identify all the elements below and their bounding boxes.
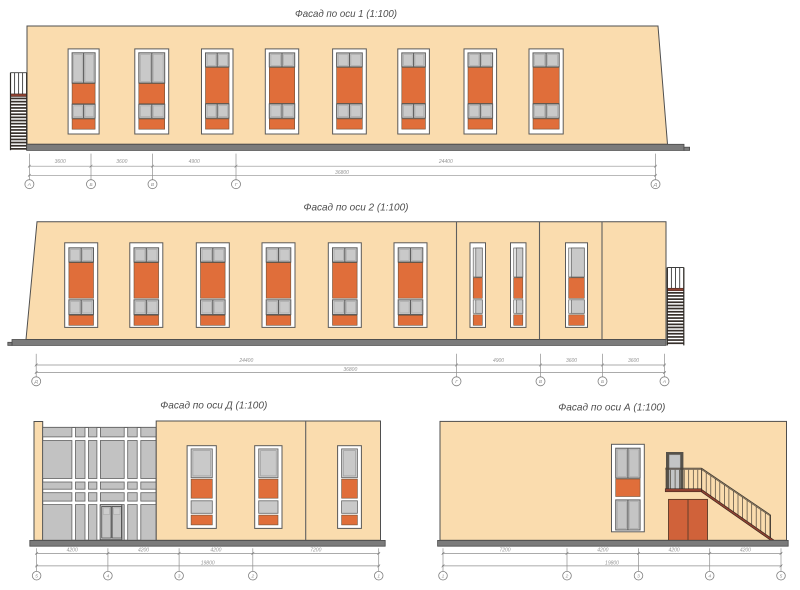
- svg-text:4: 4: [107, 574, 110, 580]
- svg-text:5: 5: [780, 574, 783, 580]
- svg-text:3600: 3600: [55, 159, 66, 165]
- svg-text:19800: 19800: [605, 561, 619, 567]
- svg-text:4200: 4200: [67, 547, 78, 553]
- svg-text:4200: 4200: [669, 547, 680, 553]
- svg-text:7200: 7200: [499, 547, 510, 553]
- svg-text:Д: Д: [653, 182, 658, 188]
- svg-text:2: 2: [250, 574, 254, 580]
- svg-text:4200: 4200: [597, 547, 608, 553]
- svg-text:4: 4: [708, 574, 711, 580]
- svg-text:36800: 36800: [343, 367, 357, 373]
- svg-text:Г: Г: [235, 182, 238, 188]
- svg-text:Фасад по оси А (1:100): Фасад по оси А (1:100): [558, 403, 665, 414]
- svg-text:4200: 4200: [740, 547, 751, 553]
- svg-text:3: 3: [637, 574, 640, 580]
- svg-text:Д: Д: [34, 379, 39, 385]
- svg-text:5: 5: [35, 574, 38, 580]
- svg-text:Фасад по оси 1 (1:100): Фасад по оси 1 (1:100): [295, 9, 397, 20]
- svg-text:Б: Б: [601, 379, 604, 385]
- svg-text:24400: 24400: [238, 358, 253, 364]
- svg-text:36800: 36800: [335, 170, 349, 176]
- svg-text:2: 2: [565, 574, 569, 580]
- svg-text:1: 1: [442, 574, 445, 580]
- svg-text:4900: 4900: [493, 358, 504, 364]
- svg-text:7200: 7200: [310, 547, 321, 553]
- svg-text:Фасад по оси 2 (1:100): Фасад по оси 2 (1:100): [304, 203, 409, 214]
- svg-text:4900: 4900: [189, 159, 200, 165]
- svg-text:3600: 3600: [566, 358, 577, 364]
- svg-text:19800: 19800: [201, 561, 215, 567]
- svg-text:А: А: [27, 182, 31, 188]
- svg-text:3600: 3600: [628, 358, 639, 364]
- svg-text:Г: Г: [455, 379, 458, 385]
- svg-text:А: А: [662, 379, 666, 385]
- svg-text:Б: Б: [89, 182, 92, 188]
- svg-text:4200: 4200: [138, 547, 149, 553]
- svg-text:1: 1: [377, 574, 380, 580]
- svg-text:Фасад по оси Д (1:100): Фасад по оси Д (1:100): [160, 401, 267, 412]
- svg-text:3: 3: [178, 574, 181, 580]
- svg-text:4200: 4200: [210, 547, 221, 553]
- svg-text:24400: 24400: [438, 159, 453, 165]
- svg-text:3600: 3600: [116, 159, 127, 165]
